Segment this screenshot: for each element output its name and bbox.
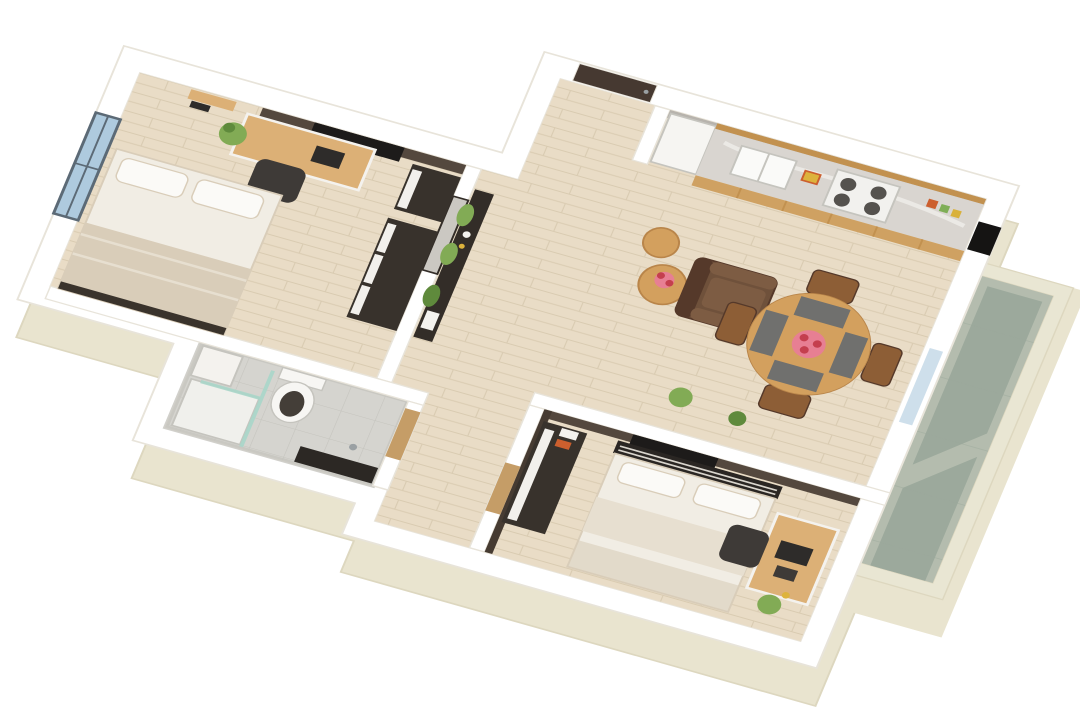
wardrobe-door [507,428,554,521]
jar [950,209,961,218]
desk-chair [245,157,308,205]
bedroom-2-accent-wall-west [485,409,552,554]
placemat [749,310,789,357]
wall-hall-bedroom2 [470,405,545,552]
wardrobe-door [350,285,370,315]
balcony-floor [861,276,1053,583]
armchair-arm [708,261,779,291]
living-dining [583,222,925,460]
flower-centerpiece [787,326,830,361]
sink [730,146,797,189]
toilet [265,377,321,427]
headboard-bench [613,440,783,499]
background [0,0,1080,720]
bedroom-2-accent-wall [541,409,860,506]
wall-entry-kitchen [632,106,670,165]
blanket [60,222,251,329]
desk-chair [717,523,772,570]
dining-chair [757,384,812,420]
cake-stand [802,171,821,185]
shower-tray [172,379,260,445]
balcony-floor-shadow [870,441,977,581]
wall-shelf [187,89,236,111]
exterior-wall-face [0,0,1018,706]
dresser-front [397,169,422,209]
hallway [407,187,494,342]
bed-footboard [58,281,226,335]
exterior-wall-top [0,0,1019,668]
wall-bathroom-hall [373,401,424,490]
dining-table [730,280,888,409]
shelf-item [189,101,211,113]
dining-set [693,251,925,438]
flower-vase [652,270,677,291]
placemat [829,332,869,379]
bathroom-floor [166,343,409,486]
side-table [632,260,693,310]
armchair-base [673,256,778,336]
bedroom-2-door [485,462,520,514]
bedroom-1-accent-wall [259,108,466,175]
wall-bedroom1-bathroom [45,286,428,405]
potted-plant [215,119,251,148]
tv-panel [628,434,718,470]
jar [926,199,939,209]
decor-books [420,310,439,331]
placemat [794,296,851,328]
flower [664,279,674,287]
decor-bowl [462,230,472,238]
hanging-plant [419,283,443,309]
bathroom-door [385,408,420,460]
pillow [190,178,266,220]
window-mullion [54,113,121,221]
wall-bedroom1-hall [377,165,482,382]
sink-divider [758,154,770,182]
burner [868,185,888,202]
laptop [310,145,345,169]
ac-unit [967,221,1001,255]
wall-living-bedroom2 [529,393,890,506]
armchair-cushion [700,276,767,321]
cabinet-fronts [691,175,964,261]
entry-door-handle [643,89,649,94]
flower [656,271,666,279]
bathroom [169,345,423,488]
desk [747,513,839,605]
bedroom-2 [473,405,853,631]
pillow [691,483,762,521]
toilet-seat [275,388,308,419]
wardrobe [501,421,587,534]
apartment [0,0,1080,720]
bed [567,453,775,612]
marble-vein [718,143,970,226]
duvet-fold [567,540,739,612]
bed [58,149,282,335]
window [54,113,121,221]
armchair-back [673,256,714,318]
wardrobe-door [376,223,396,253]
pillow [114,157,190,199]
placemat [767,360,824,392]
dining-chair [860,342,904,387]
gas-hob [823,169,900,222]
shelf-box-orange [555,439,572,450]
headboard-slats [618,446,777,494]
laptop [774,540,813,566]
interior-walls [0,0,1011,648]
flower [812,339,823,348]
glass-shower [181,354,273,447]
washer-cabinet [191,346,243,387]
dining-chair [805,269,860,305]
side-table [638,224,684,262]
duvet-fold [582,497,757,576]
flower [798,333,809,342]
flower [799,345,810,354]
burner [838,176,858,193]
pillow [616,461,687,499]
armchair [673,256,778,336]
decor-gold [781,591,791,599]
balcony-wall-ring [856,263,1074,599]
balcony [841,263,1080,637]
toilet-tank [278,367,326,390]
bedroom-1 [58,75,466,378]
counter-run [696,129,984,251]
entry-door [573,64,658,103]
burner [832,192,852,209]
desk [231,114,376,190]
balcony-wall-face [841,263,1080,637]
fridge [651,114,717,175]
potted-plant [665,385,696,410]
hanging-plant [453,202,477,228]
balcony-floor-shadow [913,286,1043,480]
plant-leaves [222,121,237,134]
blanket-folds [73,234,247,300]
decor-bowl-gold [458,243,466,249]
vanity-counter [294,446,378,483]
hanging-plant [437,241,461,267]
dining-chair [714,301,758,346]
floor-drain [348,443,358,451]
potted-plant [754,592,785,617]
potted-plant [726,409,749,428]
hall-mirror [422,196,468,274]
wardrobe-door [363,254,383,284]
kitchen-wall-band [667,110,986,207]
jar [939,204,950,213]
tv-panel [309,122,405,161]
dresser [394,164,461,223]
desk-item [773,565,798,582]
armchair-arm [689,306,760,336]
wardrobe [346,218,438,331]
balcony-tile-lines [871,322,1034,559]
burner [862,200,882,217]
shelf-box [559,428,579,441]
kitchen [646,110,986,261]
console-table [413,189,494,342]
floor-plan-canvas [0,0,1080,720]
bedroom-1-floor [50,73,466,378]
upper-cabinets [715,123,986,204]
balcony-glass-slider [899,348,943,425]
hall-living-bedroom2-floor [338,69,986,641]
cabinet-divisions [737,188,923,249]
bathroom-wall-tint [166,343,409,486]
